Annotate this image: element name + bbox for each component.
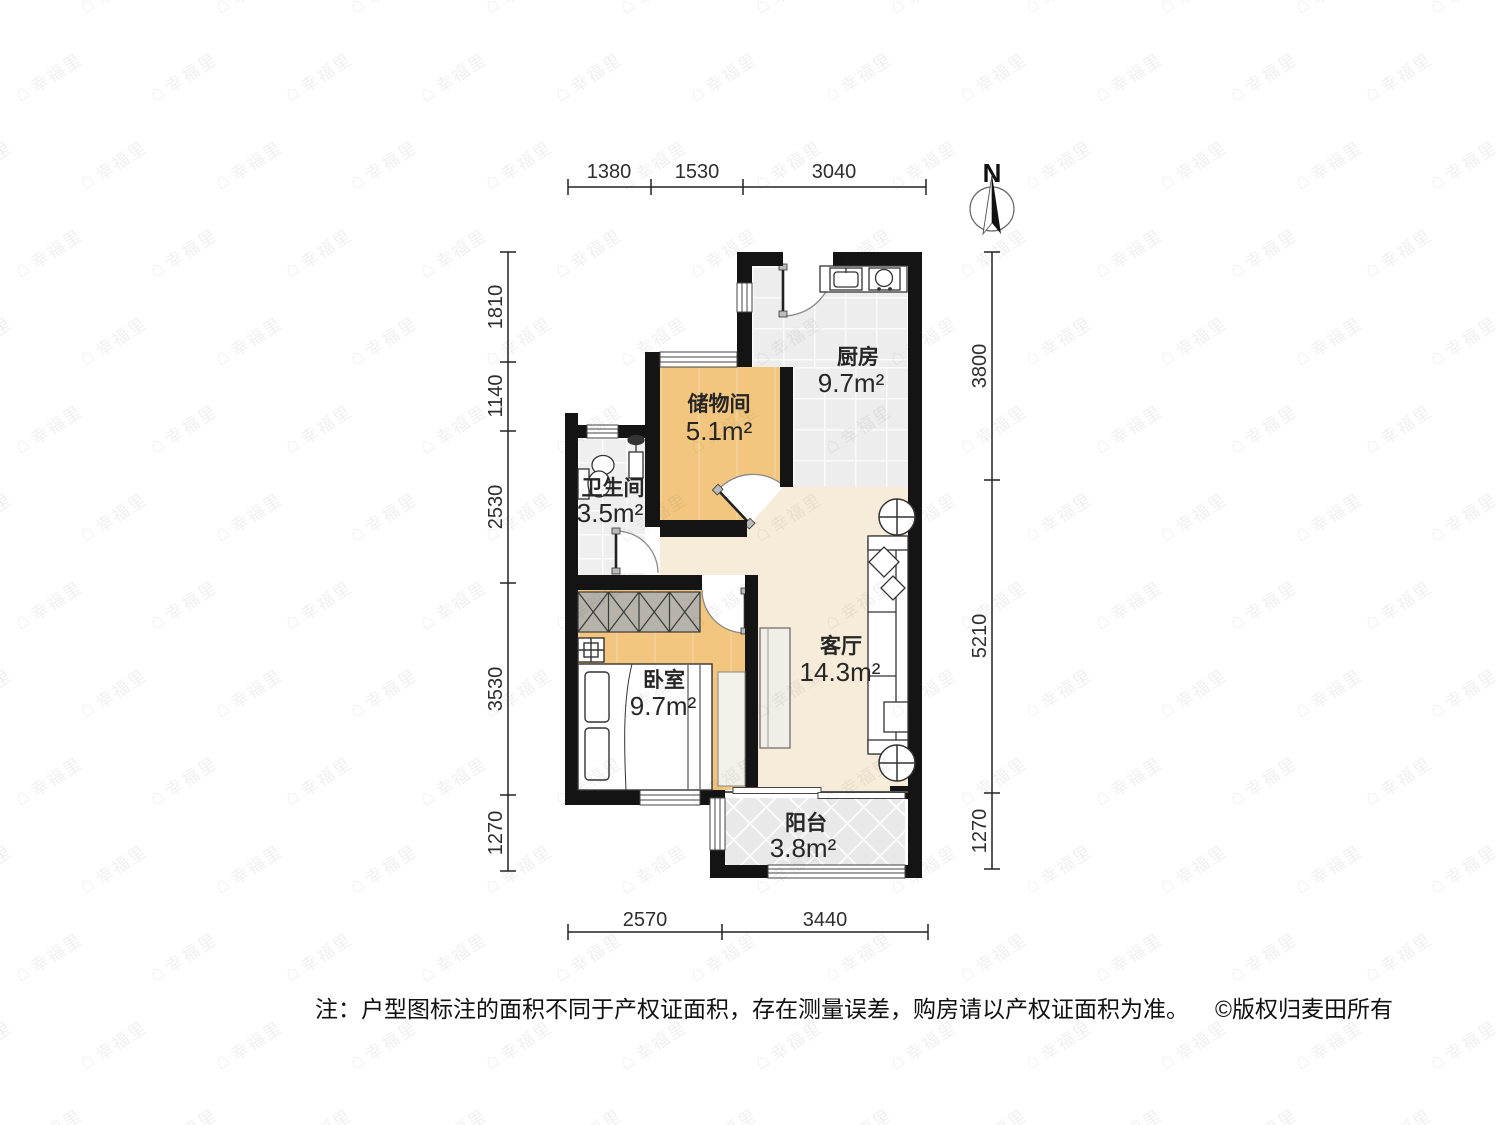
wall (737, 312, 752, 352)
bedroom-label: 卧室 (643, 668, 685, 692)
wall (565, 425, 587, 438)
bathroom-label: 卫生间 (582, 476, 645, 500)
floorplan-image: 1380 1530 3040 1810 1140 2530 3530 1270 … (0, 0, 1500, 1125)
dim-label: 1270 (969, 809, 991, 854)
wall (710, 865, 768, 878)
north-arrow: N (970, 158, 1014, 234)
sink-icon (830, 268, 862, 290)
living-label: 客厅 (820, 634, 862, 658)
balcony-area: 3.8m² (770, 833, 837, 863)
radiator-symbol (879, 745, 915, 781)
kitchen-area: 9.7m² (818, 368, 885, 398)
wall (565, 575, 702, 590)
bathroom-area: 3.5m² (577, 498, 644, 528)
dim-label: 2530 (485, 485, 507, 530)
bedroom-area: 9.7m² (630, 691, 697, 721)
kitchen-label: 厨房 (837, 345, 879, 369)
note-text: 注：户型图标注的面积不同于产权证面积，存在测量误差，购房请以产权证面积为准。 (315, 990, 1189, 1024)
wall (660, 520, 747, 537)
dim-label: 3040 (812, 161, 857, 183)
sideboard (760, 628, 790, 748)
bathroom-door (612, 528, 658, 574)
wall (908, 252, 922, 878)
wall (737, 266, 752, 283)
copyright-text: ©版权归麦田所有 (1215, 990, 1393, 1024)
wall (737, 352, 752, 367)
dim-label: 1270 (485, 811, 507, 856)
bedroom-window (640, 790, 700, 805)
bedroom-door (702, 588, 749, 634)
plan-drawing: 1380 1530 3040 1810 1140 2530 3530 1270 … (0, 0, 1500, 1125)
dim-label: 3440 (803, 909, 848, 931)
storage-label: 储物间 (688, 392, 751, 416)
dim-label: 3800 (969, 344, 991, 389)
dim-label: 5210 (969, 614, 991, 659)
wall (780, 367, 793, 487)
dim-label: 1140 (485, 374, 507, 417)
balcony-side-window (710, 798, 725, 850)
wall (745, 575, 758, 792)
side-table (884, 702, 908, 732)
disclaimer-note: 注：户型图标注的面积不同于产权证面积，存在测量误差，购房请以产权证面积为准。 ©… (315, 990, 1393, 1024)
dim-left (500, 252, 516, 871)
sofa (868, 536, 908, 754)
wall (905, 865, 922, 878)
bathroom-window (587, 425, 618, 438)
sliding-door (725, 788, 908, 799)
dim-label: 3530 (485, 667, 507, 712)
kitchen-window (737, 283, 752, 312)
wall (565, 413, 578, 805)
kitchen-fixtures (820, 266, 907, 292)
storage-area: 5.1m² (686, 416, 753, 446)
wall (645, 352, 660, 527)
wall (578, 790, 640, 805)
shower-icon (628, 436, 644, 479)
balcony-label: 阳台 (785, 811, 827, 835)
wall (737, 252, 783, 266)
radiator-symbol (879, 499, 915, 535)
stove-icon (869, 268, 900, 290)
dim-label: 1530 (675, 161, 720, 183)
dim-label: 2570 (623, 909, 668, 931)
storage-window (660, 352, 737, 367)
dresser (718, 672, 745, 786)
wardrobe (578, 592, 700, 632)
balcony-front-window (768, 865, 905, 878)
dim-label: 1810 (485, 285, 507, 330)
living-area: 14.3m² (800, 657, 881, 687)
dim-label: 1380 (587, 161, 632, 183)
radiator-icon (578, 638, 604, 662)
